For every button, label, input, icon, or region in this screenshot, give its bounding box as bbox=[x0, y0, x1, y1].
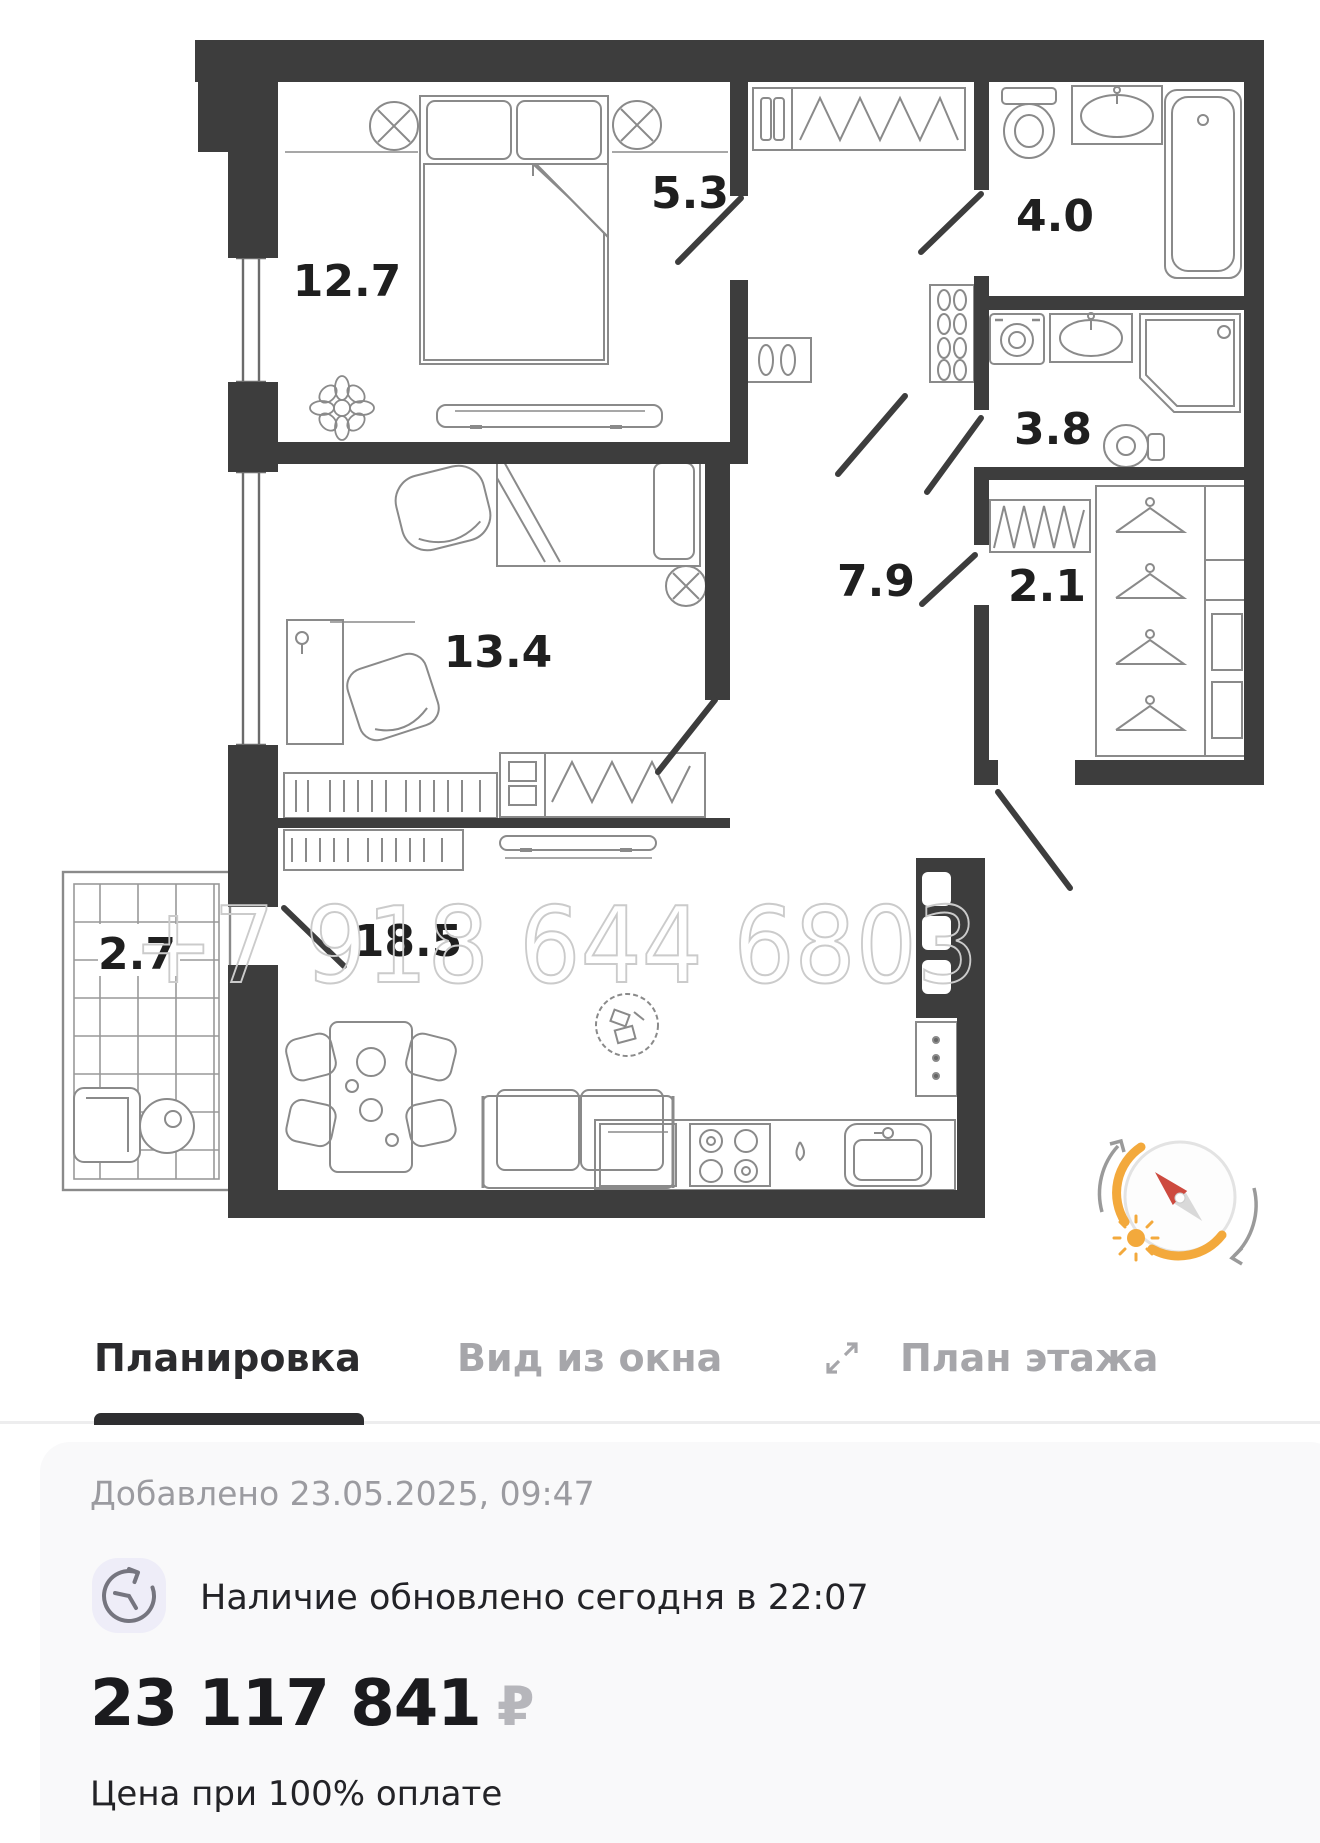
sink-icon bbox=[1072, 86, 1162, 144]
double-bed bbox=[420, 96, 608, 364]
wardrobe-unit bbox=[990, 486, 1248, 756]
toilet-icon bbox=[1104, 425, 1164, 467]
room-area-bathroom-2: 3.8 bbox=[1014, 404, 1092, 455]
room-area-corridor: 7.9 bbox=[837, 556, 915, 607]
active-tab-underline bbox=[94, 1413, 364, 1425]
sun-icon bbox=[1114, 1216, 1158, 1260]
sofa bbox=[483, 1090, 673, 1188]
floor-plan-image: 12.7 5.3 4.0 3.8 13.4 7.9 2.1 2.7 18.5 +… bbox=[0, 0, 1320, 1300]
dining-table bbox=[284, 1022, 459, 1172]
added-date: Добавлено 23.05.2025, 09:47 bbox=[90, 1474, 595, 1513]
room-area-bathroom-1: 4.0 bbox=[1016, 191, 1094, 242]
compass-icon bbox=[1099, 1141, 1256, 1264]
room-area-wardrobe: 2.1 bbox=[1008, 561, 1086, 612]
price-value: 23 117 841 bbox=[90, 1668, 481, 1740]
price-note: Цена при 100% оплате bbox=[90, 1774, 502, 1814]
currency-symbol: ₽ bbox=[497, 1674, 535, 1740]
sideboard bbox=[284, 773, 497, 818]
price-row: 23 117 841 ₽ bbox=[90, 1668, 534, 1740]
armchair bbox=[390, 460, 496, 556]
tv-stand bbox=[500, 836, 656, 858]
clock-refresh-icon bbox=[92, 1558, 166, 1633]
toilet-icon bbox=[1002, 88, 1056, 158]
balcony-armchair bbox=[74, 1088, 140, 1162]
room-area-hallway: 5.3 bbox=[651, 168, 729, 219]
doors bbox=[284, 194, 1070, 966]
closet-hangers bbox=[500, 753, 705, 817]
washing-machine-icon bbox=[990, 314, 1044, 364]
floor-plan-viewer[interactable]: 12.7 5.3 4.0 3.8 13.4 7.9 2.1 2.7 18.5 +… bbox=[0, 0, 1320, 1300]
shoe-rack bbox=[930, 285, 974, 382]
tab-floor-plan[interactable]: План этажа bbox=[900, 1336, 1158, 1380]
shower-icon bbox=[1140, 314, 1240, 412]
listing-info-card: Добавлено 23.05.2025, 09:47 Наличие обно… bbox=[40, 1442, 1320, 1843]
tab-window-view[interactable]: Вид из окна bbox=[457, 1336, 722, 1380]
sink-icon bbox=[1050, 313, 1132, 362]
sideboard bbox=[284, 830, 463, 870]
apartment-listing-screen: 12.7 5.3 4.0 3.8 13.4 7.9 2.1 2.7 18.5 +… bbox=[0, 0, 1320, 1843]
tab-layout[interactable]: Планировка bbox=[94, 1336, 361, 1380]
desk bbox=[287, 620, 443, 745]
room-area-bedroom-2: 13.4 bbox=[444, 627, 553, 678]
kitchen-counter bbox=[595, 1120, 955, 1190]
availability-badge bbox=[92, 1558, 166, 1633]
radiator-flower-icon bbox=[310, 376, 374, 440]
walls bbox=[195, 40, 1264, 1218]
shoe-cabinet bbox=[747, 338, 811, 382]
boiler-unit bbox=[916, 1022, 957, 1096]
room-area-bedroom-1: 12.7 bbox=[293, 256, 402, 307]
coat-rack bbox=[753, 88, 965, 150]
ceiling-lamp-icon bbox=[285, 101, 728, 152]
ceiling-lamp-icon bbox=[666, 566, 706, 606]
phone-watermark: +7 918 644 6803 bbox=[133, 885, 978, 1007]
availability-text: Наличие обновлено сегодня в 22:07 bbox=[200, 1578, 869, 1618]
balcony-table bbox=[140, 1099, 194, 1153]
expand-icon[interactable] bbox=[822, 1338, 862, 1378]
dresser bbox=[437, 405, 662, 427]
single-bed bbox=[497, 456, 700, 566]
bathtub-icon bbox=[1165, 90, 1241, 278]
